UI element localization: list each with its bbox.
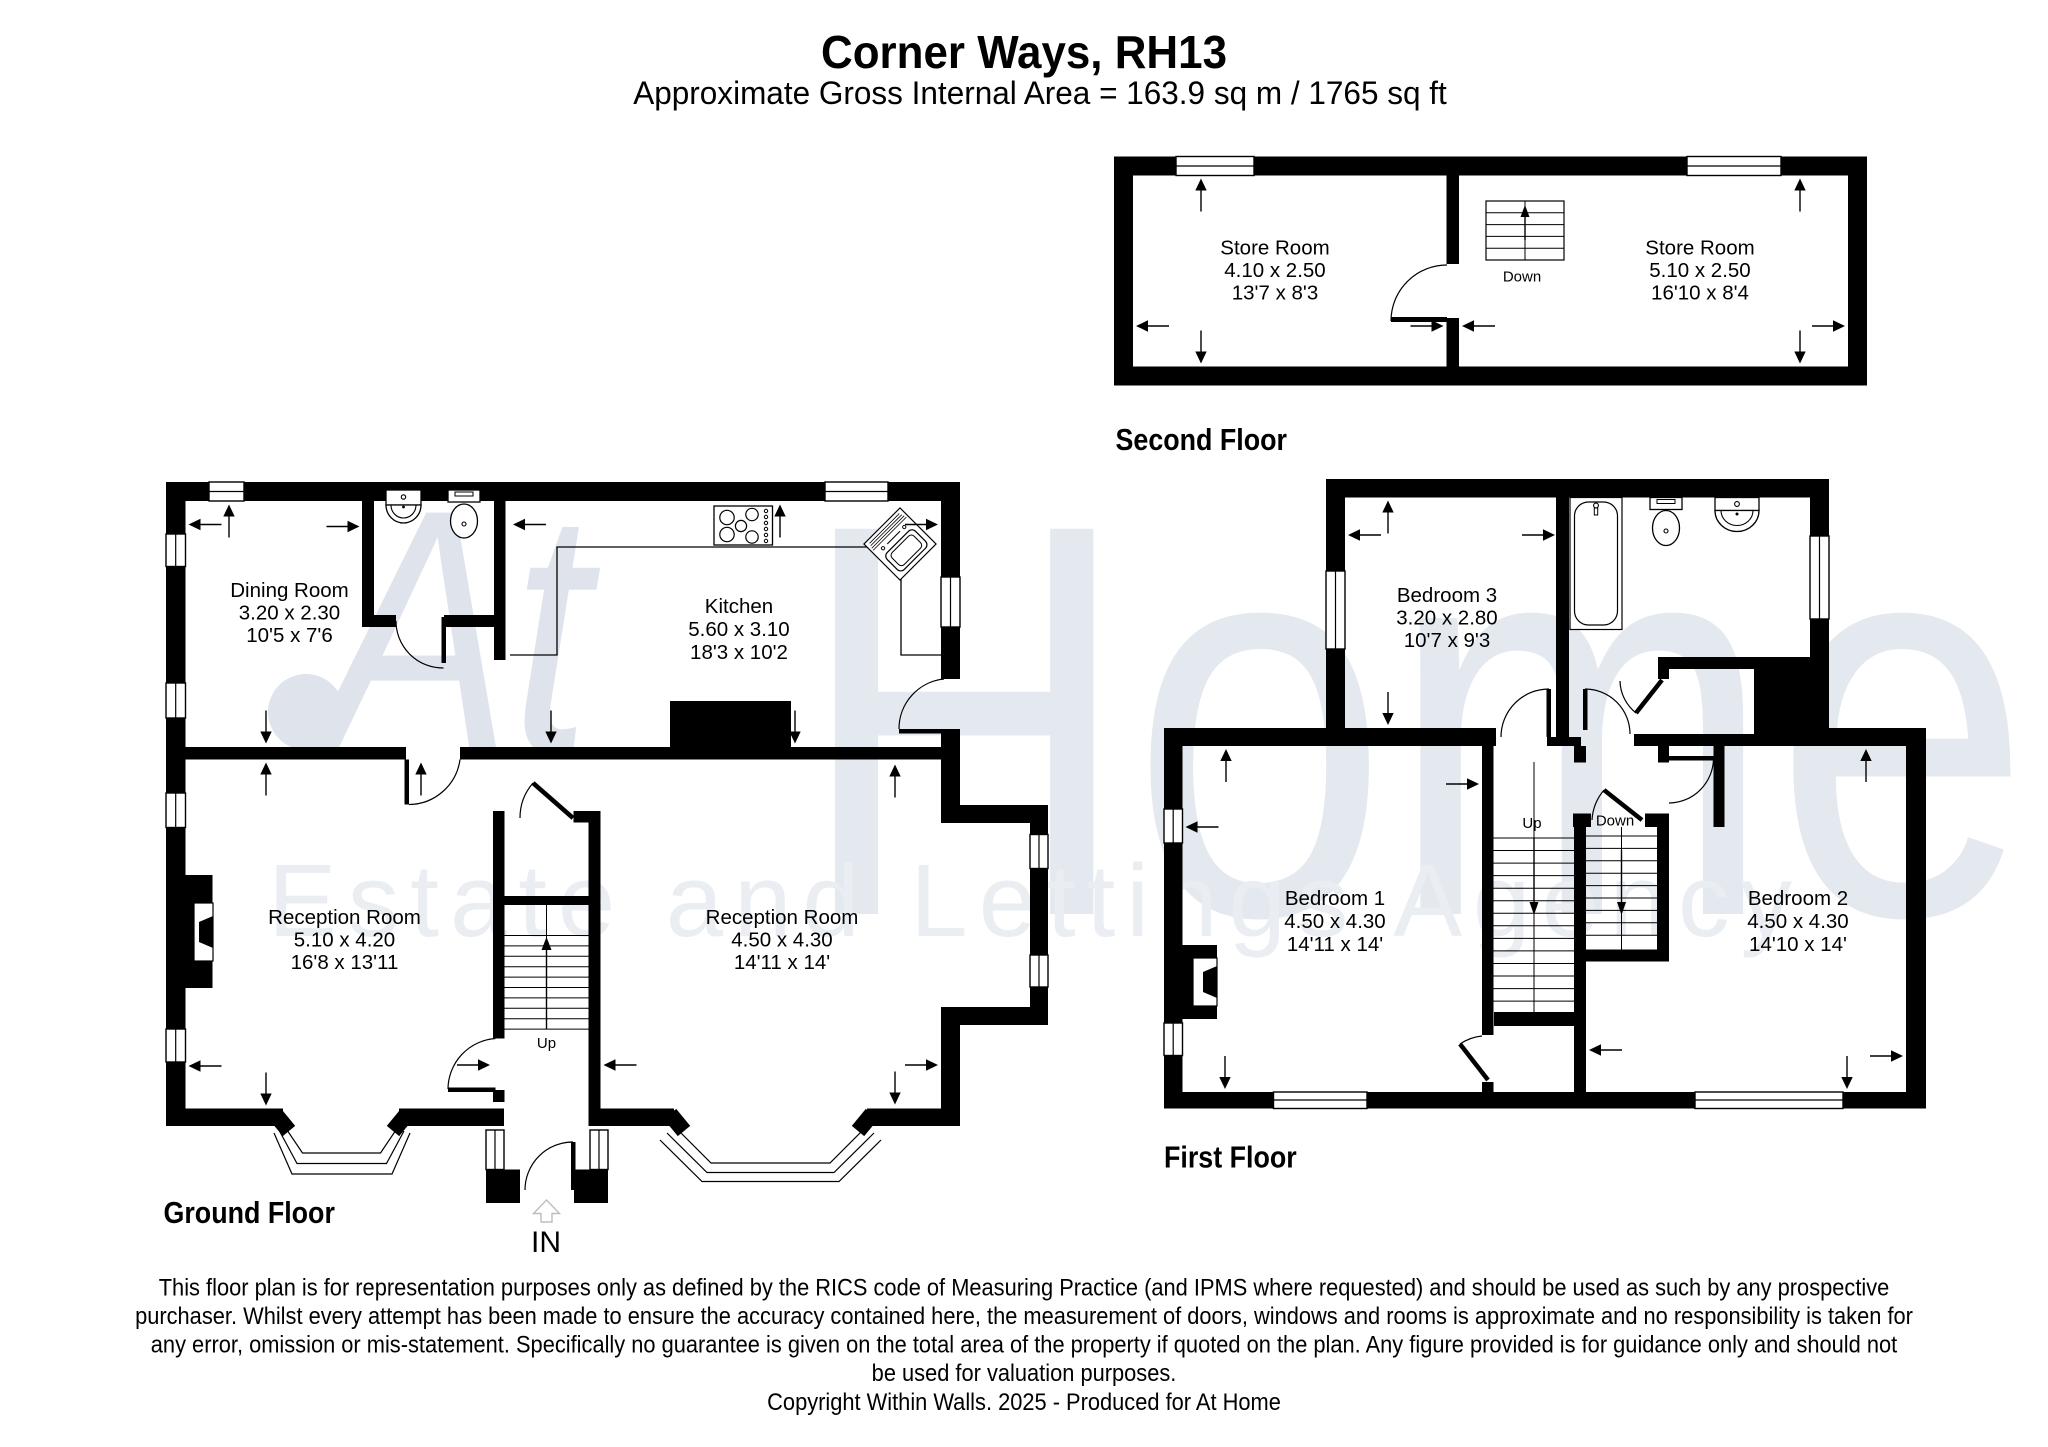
svg-text:Second Floor: Second Floor <box>1116 423 1287 457</box>
svg-text:Corner Ways, RH13: Corner Ways, RH13 <box>821 26 1227 78</box>
svg-text:Copyright Within Walls. 2025 -: Copyright Within Walls. 2025 - Produced … <box>767 1388 1281 1415</box>
svg-text:Ground Floor: Ground Floor <box>164 1196 335 1230</box>
svg-text:Bedroom 24.50 x 4.3014'10 x 14: Bedroom 24.50 x 4.3014'10 x 14' <box>1747 887 1848 956</box>
svg-text:IN: IN <box>531 1226 561 1259</box>
svg-text:Bedroom 14.50 x 4.3014'11 x 14: Bedroom 14.50 x 4.3014'11 x 14' <box>1284 887 1385 956</box>
svg-text:Approximate Gross Internal Are: Approximate Gross Internal Area = 163.9 … <box>633 75 1447 112</box>
svg-text:Down: Down <box>1596 813 1634 830</box>
svg-text:First Floor: First Floor <box>1164 1141 1297 1175</box>
svg-text:Dining Room3.20 x 2.3010'5 x 7: Dining Room3.20 x 2.3010'5 x 7'6 <box>230 579 349 647</box>
svg-text:Up: Up <box>537 1035 556 1052</box>
svg-text:Store Room5.10 x 2.5016'10 x 8: Store Room5.10 x 2.5016'10 x 8'4 <box>1645 237 1754 305</box>
svg-text:Up: Up <box>1522 815 1541 832</box>
svg-text:Store Room4.10 x 2.5013'7 x 8': Store Room4.10 x 2.5013'7 x 8'3 <box>1220 237 1329 305</box>
svg-text:Bedroom 33.20 x 2.8010'7 x 9'3: Bedroom 33.20 x 2.8010'7 x 9'3 <box>1396 584 1497 652</box>
svg-text:Down: Down <box>1503 269 1541 286</box>
